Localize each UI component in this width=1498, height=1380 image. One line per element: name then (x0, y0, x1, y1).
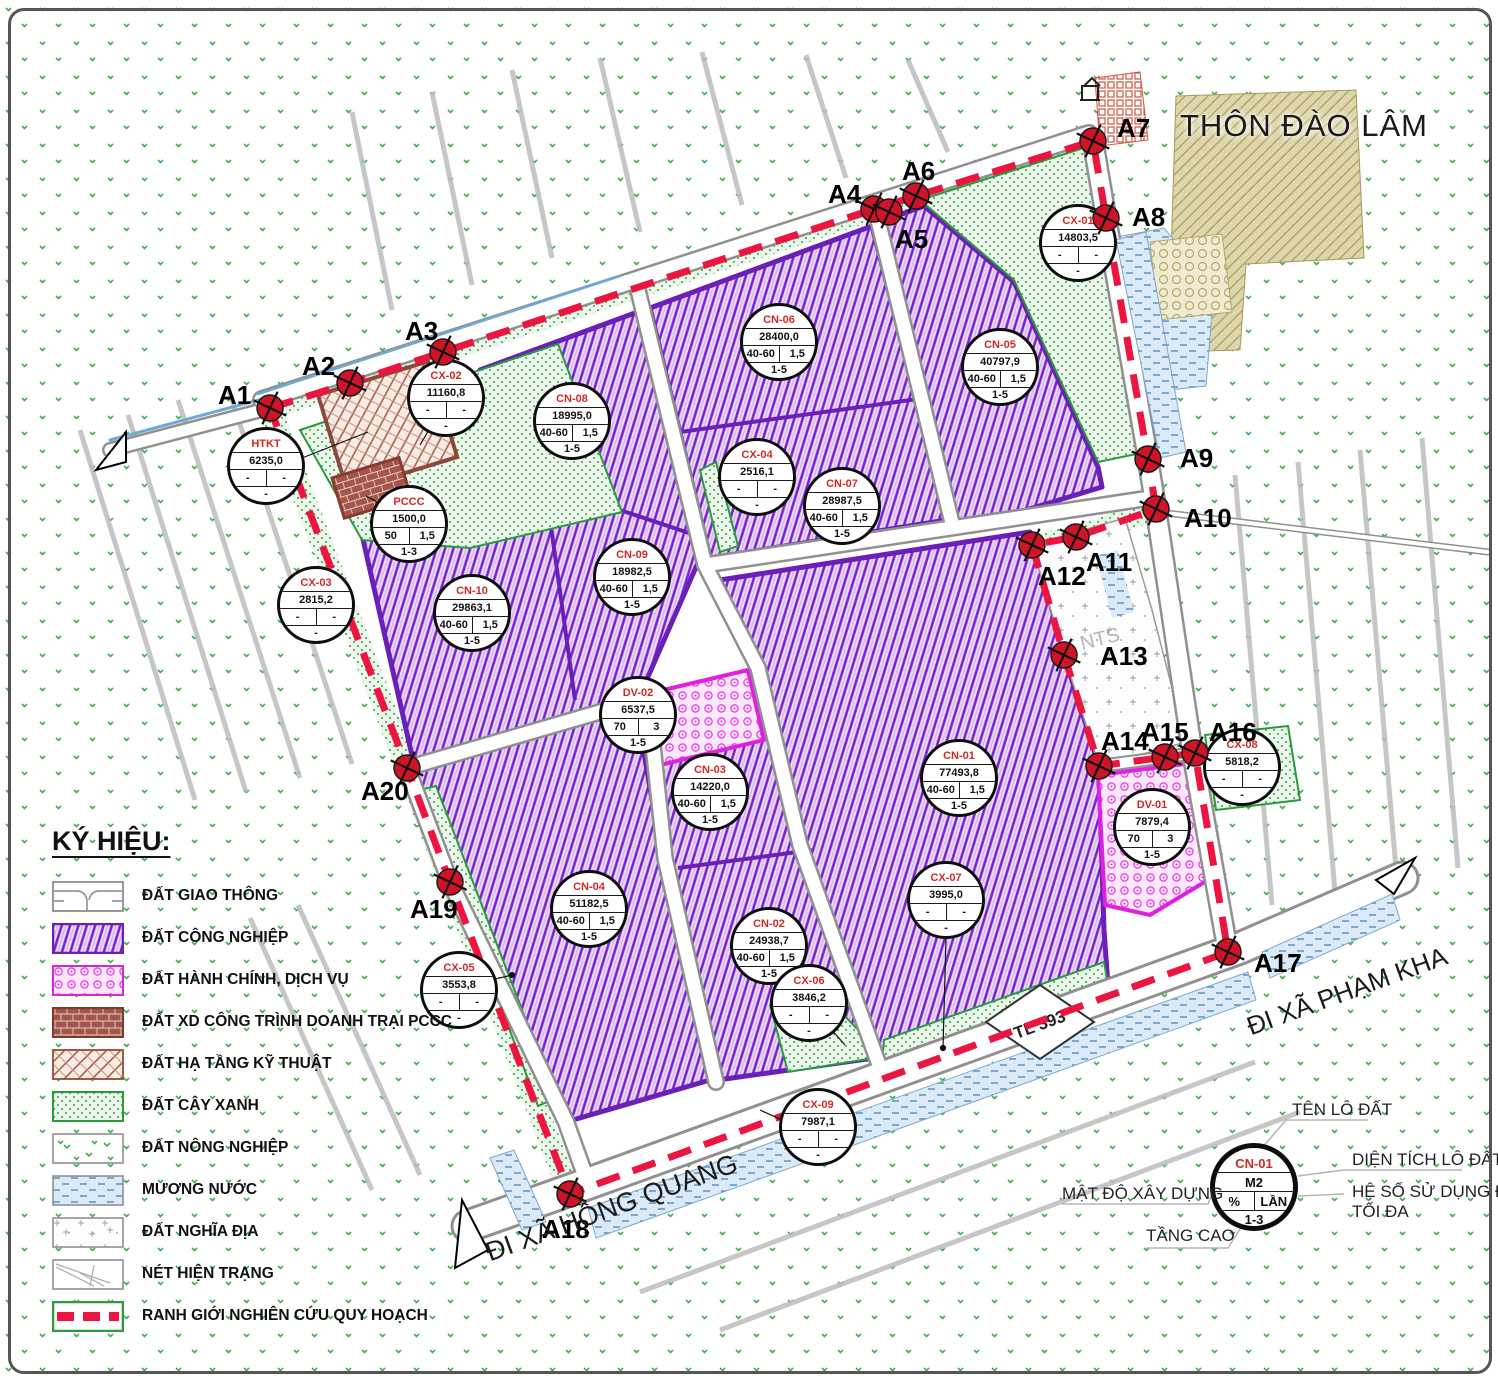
parcel-coefficient: 1,5 (590, 913, 626, 929)
planning-map-page: NTS (0, 0, 1498, 1380)
boundary-label-a16: A16 (1209, 717, 1257, 748)
crosshair-marker-icon (251, 389, 289, 427)
parcel-density: - (410, 402, 447, 418)
boundary-marker-a17 (1209, 933, 1247, 971)
legend-swatch-ha-tang (52, 1049, 124, 1080)
parcel-badge-cn-05: CN-0540797,940-601,51-5 (961, 328, 1039, 406)
legend-title: KÝ HIỆU: (52, 826, 452, 857)
parcel-badge-cn-04: CN-0451182,540-601,51-5 (550, 870, 628, 948)
parcel-badge-cx-03: CX-032815,2--- (277, 566, 355, 644)
parcel-badge-cn-01: CN-0177493,840-601,51-5 (920, 739, 998, 817)
parcel-coefficient: - (267, 470, 303, 486)
parcel-coefficient: - (1079, 247, 1115, 263)
parcel-area: 6537,5 (602, 702, 674, 719)
boundary-label-a20: A20 (361, 776, 409, 807)
parcel-coefficient: 1,5 (573, 425, 609, 441)
legend-item-hanh-chinh: ĐẤT HÀNH CHÍNH, DỊCH VỤ (52, 959, 452, 1001)
parcel-area: 40797,9 (964, 354, 1036, 371)
boundary-marker-a12 (1013, 526, 1051, 564)
parcel-id: CN-01 (1215, 1148, 1293, 1173)
parcel-area: 3846,2 (773, 990, 845, 1007)
legend-swatch-nghia-dia (52, 1217, 124, 1248)
boundary-label-a1: A1 (218, 380, 251, 411)
crosshair-marker-icon (331, 364, 369, 402)
parcel-density: 40-60 (743, 346, 780, 362)
village-orchard (1150, 234, 1232, 320)
parcel-coefficient: - (460, 994, 496, 1010)
legend-item-hien-trang: NÉT HIỆN TRẠNG (52, 1253, 452, 1295)
parcel-area: 3995,0 (910, 887, 982, 904)
legend-label-ha-tang: ĐẤT HẠ TẦNG KỸ THUẬT (142, 1055, 331, 1073)
boundary-label-a9: A9 (1180, 443, 1213, 474)
crosshair-marker-icon (1209, 933, 1247, 971)
parcel-area: 28400,0 (743, 329, 815, 346)
parcel-coefficient: LẦN (1255, 1192, 1294, 1210)
parcel-area: 11160,8 (410, 385, 482, 402)
crosshair-marker-icon (1045, 636, 1083, 674)
parcel-badge-cn-03: CN-0314220,040-601,51-5 (671, 753, 749, 831)
parcel-density: 70 (1116, 831, 1153, 847)
parcel-density: - (280, 609, 317, 625)
parcel-badge-dv-02: DV-026537,57031-5 (599, 676, 677, 754)
legend-label-cong-nghiep: ĐẤT CÔNG NGHIỆP (142, 929, 288, 947)
parcel-area: M2 (1215, 1173, 1293, 1192)
parcel-coefficient: - (317, 609, 353, 625)
parcel-coefficient: - (447, 402, 483, 418)
parcel-area: 6235,0 (230, 453, 302, 470)
parcel-coefficient: - (810, 1007, 846, 1023)
boundary-label-a6: A6 (902, 156, 935, 187)
crosshair-marker-icon (1129, 440, 1167, 478)
parcel-badge-cx-06: CX-063846,2--- (770, 964, 848, 1042)
legend: KÝ HIỆU: ĐẤT GIAO THÔNGĐẤT CÔNG NGHIỆPĐẤ… (52, 826, 452, 1337)
parcel-badge-htkt: HTKT6235,0--- (227, 427, 305, 505)
parcel-badge-cn-10: CN-1029863,140-601,51-5 (433, 574, 511, 652)
boundary-marker-a13 (1045, 636, 1083, 674)
village-label: THÔN ĐÀO LÂM (1180, 108, 1428, 144)
legend-label-pccc: ĐẤT XD CÔNG TRÌNH DOANH TRẠI PCCC (142, 1013, 452, 1031)
parcel-area: 18982,5 (596, 564, 668, 581)
symbol-key-callout-area: DIỆN TÍCH LÔ ĐẤT (1352, 1150, 1498, 1170)
boundary-marker-a7 (1074, 122, 1112, 160)
crosshair-marker-icon (1074, 122, 1112, 160)
boundary-marker-a9 (1129, 440, 1167, 478)
boundary-label-a12: A12 (1038, 561, 1086, 592)
parcel-coefficient: 1,5 (633, 581, 669, 597)
parcel-density: 40-60 (436, 617, 473, 633)
boundary-label-a15: A15 (1141, 717, 1189, 748)
parcel-density: 40-60 (674, 796, 711, 812)
legend-item-giao-thong: ĐẤT GIAO THÔNG (52, 875, 452, 917)
parcel-area: 2516,1 (721, 464, 793, 481)
parcel-coefficient: - (947, 904, 983, 920)
boundary-marker-a1 (251, 389, 289, 427)
symbol-key-callout-density: MẬT ĐỘ XÂY DỰNG (1062, 1184, 1223, 1204)
legend-label-cay-xanh: ĐẤT CÂY XANH (142, 1097, 259, 1115)
parcel-density: 40-60 (553, 913, 590, 929)
parcel-area: 29863,1 (436, 600, 508, 617)
legend-item-cong-nghiep: ĐẤT CÔNG NGHIỆP (52, 917, 452, 959)
symbol-key-callout-coef: HỆ SỐ SỬ DỤNG ĐẤT TỐI ĐA (1352, 1182, 1498, 1222)
legend-item-pccc: ĐẤT XD CÔNG TRÌNH DOANH TRẠI PCCC (52, 1001, 452, 1043)
parcel-density: - (773, 1007, 810, 1023)
legend-swatch-muong-nuoc (52, 1175, 124, 1206)
legend-label-hanh-chinh: ĐẤT HÀNH CHÍNH, DỊCH VỤ (142, 971, 349, 989)
parcel-density: 40-60 (806, 510, 843, 526)
parcel-area: 14220,0 (674, 779, 746, 796)
legend-label-giao-thong: ĐẤT GIAO THÔNG (142, 887, 278, 905)
parcel-badge-cx-07: CX-073995,0--- (907, 861, 985, 939)
parcel-coefficient: 1,5 (843, 510, 879, 526)
parcel-density: 40-60 (964, 371, 1001, 387)
parcel-coefficient: - (819, 1131, 855, 1147)
parcel-coefficient: 1,5 (1001, 371, 1037, 387)
legend-swatch-nong-nghiep (52, 1133, 124, 1164)
boundary-marker-a2 (331, 364, 369, 402)
legend-item-ha-tang: ĐẤT HẠ TẦNG KỸ THUẬT (52, 1043, 452, 1085)
parcel-coefficient: - (1243, 771, 1279, 787)
legend-label-nong-nghiep: ĐẤT NÔNG NGHIỆP (142, 1139, 288, 1157)
boundary-label-a4: A4 (828, 179, 861, 210)
boundary-label-a8: A8 (1132, 202, 1165, 233)
legend-label-muong-nuoc: MƯƠNG NƯỚC (142, 1181, 257, 1199)
parcel-density: - (910, 904, 947, 920)
legend-swatch-pccc (52, 1007, 124, 1038)
parcel-density: 40-60 (923, 782, 960, 798)
parcel-density: - (721, 481, 758, 497)
legend-swatch-hien-trang (52, 1259, 124, 1290)
boundary-label-a5: A5 (895, 224, 928, 255)
symbol-key-callout-coef-line2: TỐI ĐA (1352, 1202, 1409, 1221)
parcel-area: 7987,1 (782, 1114, 854, 1131)
parcel-badge-cx-09: CX-097987,1--- (779, 1088, 857, 1166)
symbol-key-callout-name: TÊN LÔ ĐẤT (1292, 1100, 1392, 1120)
parcel-density: - (1042, 247, 1079, 263)
crosshair-marker-icon (1087, 199, 1125, 237)
parcel-coefficient: 1,5 (711, 796, 747, 812)
parcel-density: 40-60 (596, 581, 633, 597)
parcel-area: 77493,8 (923, 765, 995, 782)
parcel-density: 70 (602, 719, 639, 735)
parcel-badge-dv-01: DV-017879,47031-5 (1113, 788, 1191, 866)
boundary-marker-a8 (1087, 199, 1125, 237)
parcel-coefficient: 1,5 (770, 950, 806, 966)
parcel-area: 2815,2 (280, 592, 352, 609)
legend-item-nong-nghiep: ĐẤT NÔNG NGHIỆP (52, 1127, 452, 1169)
parcel-coefficient: - (758, 481, 794, 497)
crosshair-marker-icon (1013, 526, 1051, 564)
parcel-badge-cn-06: CN-0628400,040-601,51-5 (740, 303, 818, 381)
parcel-badge-cx-04: CX-042516,1--- (718, 438, 796, 516)
legend-item-nghia-dia: ĐẤT NGHĨA ĐỊA (52, 1211, 452, 1253)
parcel-coefficient: 1,5 (410, 528, 446, 544)
symbol-key-callout-coef-line1: HỆ SỐ SỬ DỤNG ĐẤT (1352, 1182, 1498, 1201)
parcel-density: 50 (373, 528, 410, 544)
parcel-coefficient: 1,5 (960, 782, 996, 798)
parcel-area: 1500,0 (373, 511, 445, 528)
legend-item-ranh-gioi: RANH GIỚI NGHIÊN CỨU QUY HOẠCH (52, 1295, 452, 1337)
legend-item-cay-xanh: ĐẤT CÂY XANH (52, 1085, 452, 1127)
parcel-coefficient: 3 (639, 719, 675, 735)
parcel-density: - (782, 1131, 819, 1147)
boundary-label-a7: A7 (1117, 113, 1150, 144)
parcel-area: 28987,5 (806, 493, 878, 510)
legend-item-muong-nuoc: MƯƠNG NƯỚC (52, 1169, 452, 1211)
legend-swatch-cong-nghiep (52, 923, 124, 954)
legend-swatch-giao-thong (52, 881, 124, 912)
boundary-label-a3: A3 (405, 316, 438, 347)
parcel-area: 5818,2 (1206, 754, 1278, 771)
parcel-area: 7879,4 (1116, 814, 1188, 831)
parcel-coefficient: 3 (1153, 831, 1189, 847)
boundary-label-a17: A17 (1254, 948, 1302, 979)
parcel-coefficient: 1,5 (780, 346, 816, 362)
boundary-label-a2: A2 (302, 351, 335, 382)
parcel-badge-pccc: PCCC1500,0501,51-3 (370, 485, 448, 563)
parcel-badge-cn-07: CN-0728987,540-601,51-5 (803, 467, 881, 545)
parcel-badge-cn-09: CN-0918982,540-601,51-5 (593, 538, 671, 616)
parcel-coefficient: 1,5 (473, 617, 509, 633)
symbol-key-callout-floors: TẦNG CAO (1146, 1226, 1235, 1246)
parcel-badge-cn-08: CN-0818995,040-601,51-5 (533, 382, 611, 460)
legend-label-nghia-dia: ĐẤT NGHĨA ĐỊA (142, 1223, 259, 1241)
parcel-density: 40-60 (733, 950, 770, 966)
legend-label-ranh-gioi: RANH GIỚI NGHIÊN CỨU QUY HOẠCH (142, 1307, 428, 1325)
parcel-area: 18995,0 (536, 408, 608, 425)
boundary-label-a10: A10 (1184, 503, 1232, 534)
boundary-label-a13: A13 (1100, 641, 1148, 672)
parcel-density: - (230, 470, 267, 486)
legend-swatch-hanh-chinh (52, 965, 124, 996)
parcel-area: 51182,5 (553, 896, 625, 913)
parcel-density: 40-60 (536, 425, 573, 441)
boundary-label-a11: A11 (1086, 547, 1132, 578)
parcel-area: 24938,7 (733, 933, 805, 950)
legend-swatch-ranh-gioi (52, 1301, 124, 1332)
legend-swatch-cay-xanh (52, 1091, 124, 1122)
crosshair-marker-icon (1137, 490, 1175, 528)
legend-label-hien-trang: NÉT HIỆN TRẠNG (142, 1265, 274, 1283)
parcel-density: - (1206, 771, 1243, 787)
boundary-marker-a10 (1137, 490, 1175, 528)
